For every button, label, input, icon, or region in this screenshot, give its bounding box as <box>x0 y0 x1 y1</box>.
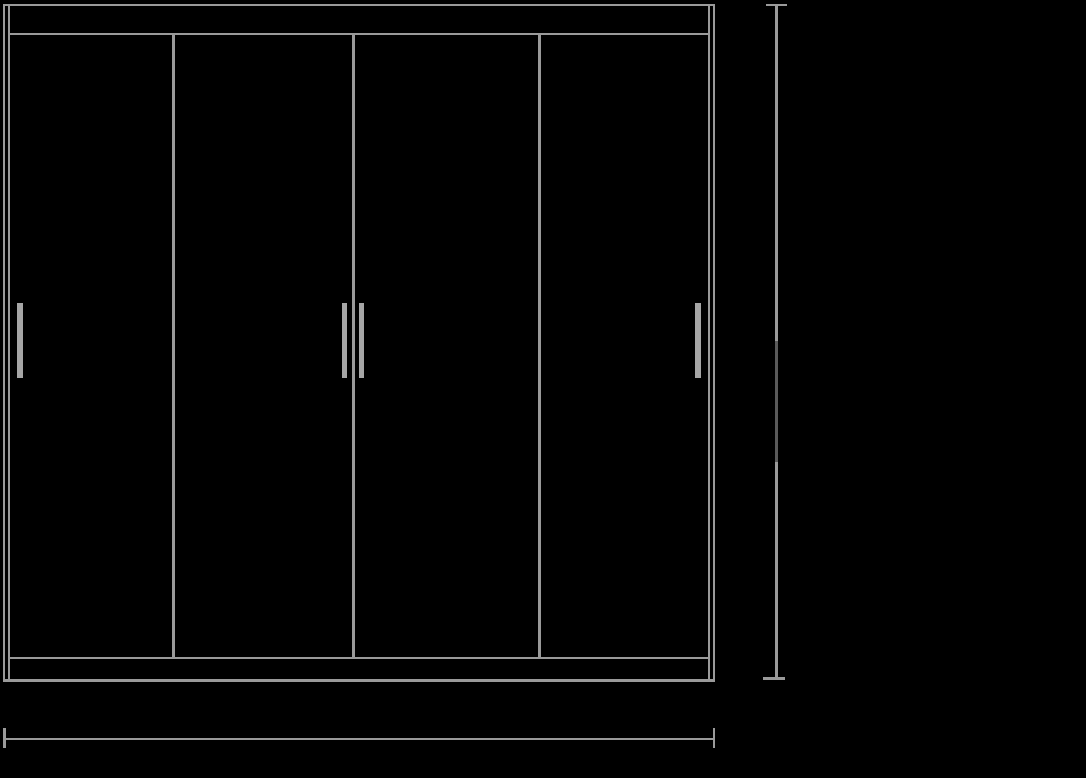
wardrobe-right-side-outer-line <box>713 4 716 681</box>
door-3-handle <box>359 303 364 379</box>
door-2-handle <box>342 303 347 379</box>
door-panel-3 <box>355 34 538 657</box>
door-panel-1 <box>10 34 171 657</box>
door-panel-4 <box>541 34 707 657</box>
door-divider-2 <box>352 34 355 657</box>
door-1-handle <box>17 303 23 379</box>
wardrobe-left-side-outer-line <box>3 4 5 681</box>
height-dimension-line-dark-segment <box>775 341 778 462</box>
door-panel-2 <box>174 34 352 657</box>
width-dimension-line-segment <box>3 738 715 741</box>
height-dimension-line-lower-segment <box>775 462 778 680</box>
width-dimension-right-cap <box>713 728 716 748</box>
door-divider-3 <box>538 34 541 657</box>
door-4-handle <box>695 303 701 379</box>
wardrobe-bottom-edge-line <box>3 679 715 682</box>
height-dimension-bottom-cap <box>763 677 786 680</box>
technical-drawing-canvas <box>0 0 1086 778</box>
door-divider-1 <box>172 34 175 657</box>
bottom-rail-line <box>10 657 708 659</box>
height-dimension-line-upper-segment <box>775 4 778 341</box>
wardrobe-right-side-inner-line <box>708 6 710 679</box>
wardrobe-top-edge-line <box>3 4 715 6</box>
